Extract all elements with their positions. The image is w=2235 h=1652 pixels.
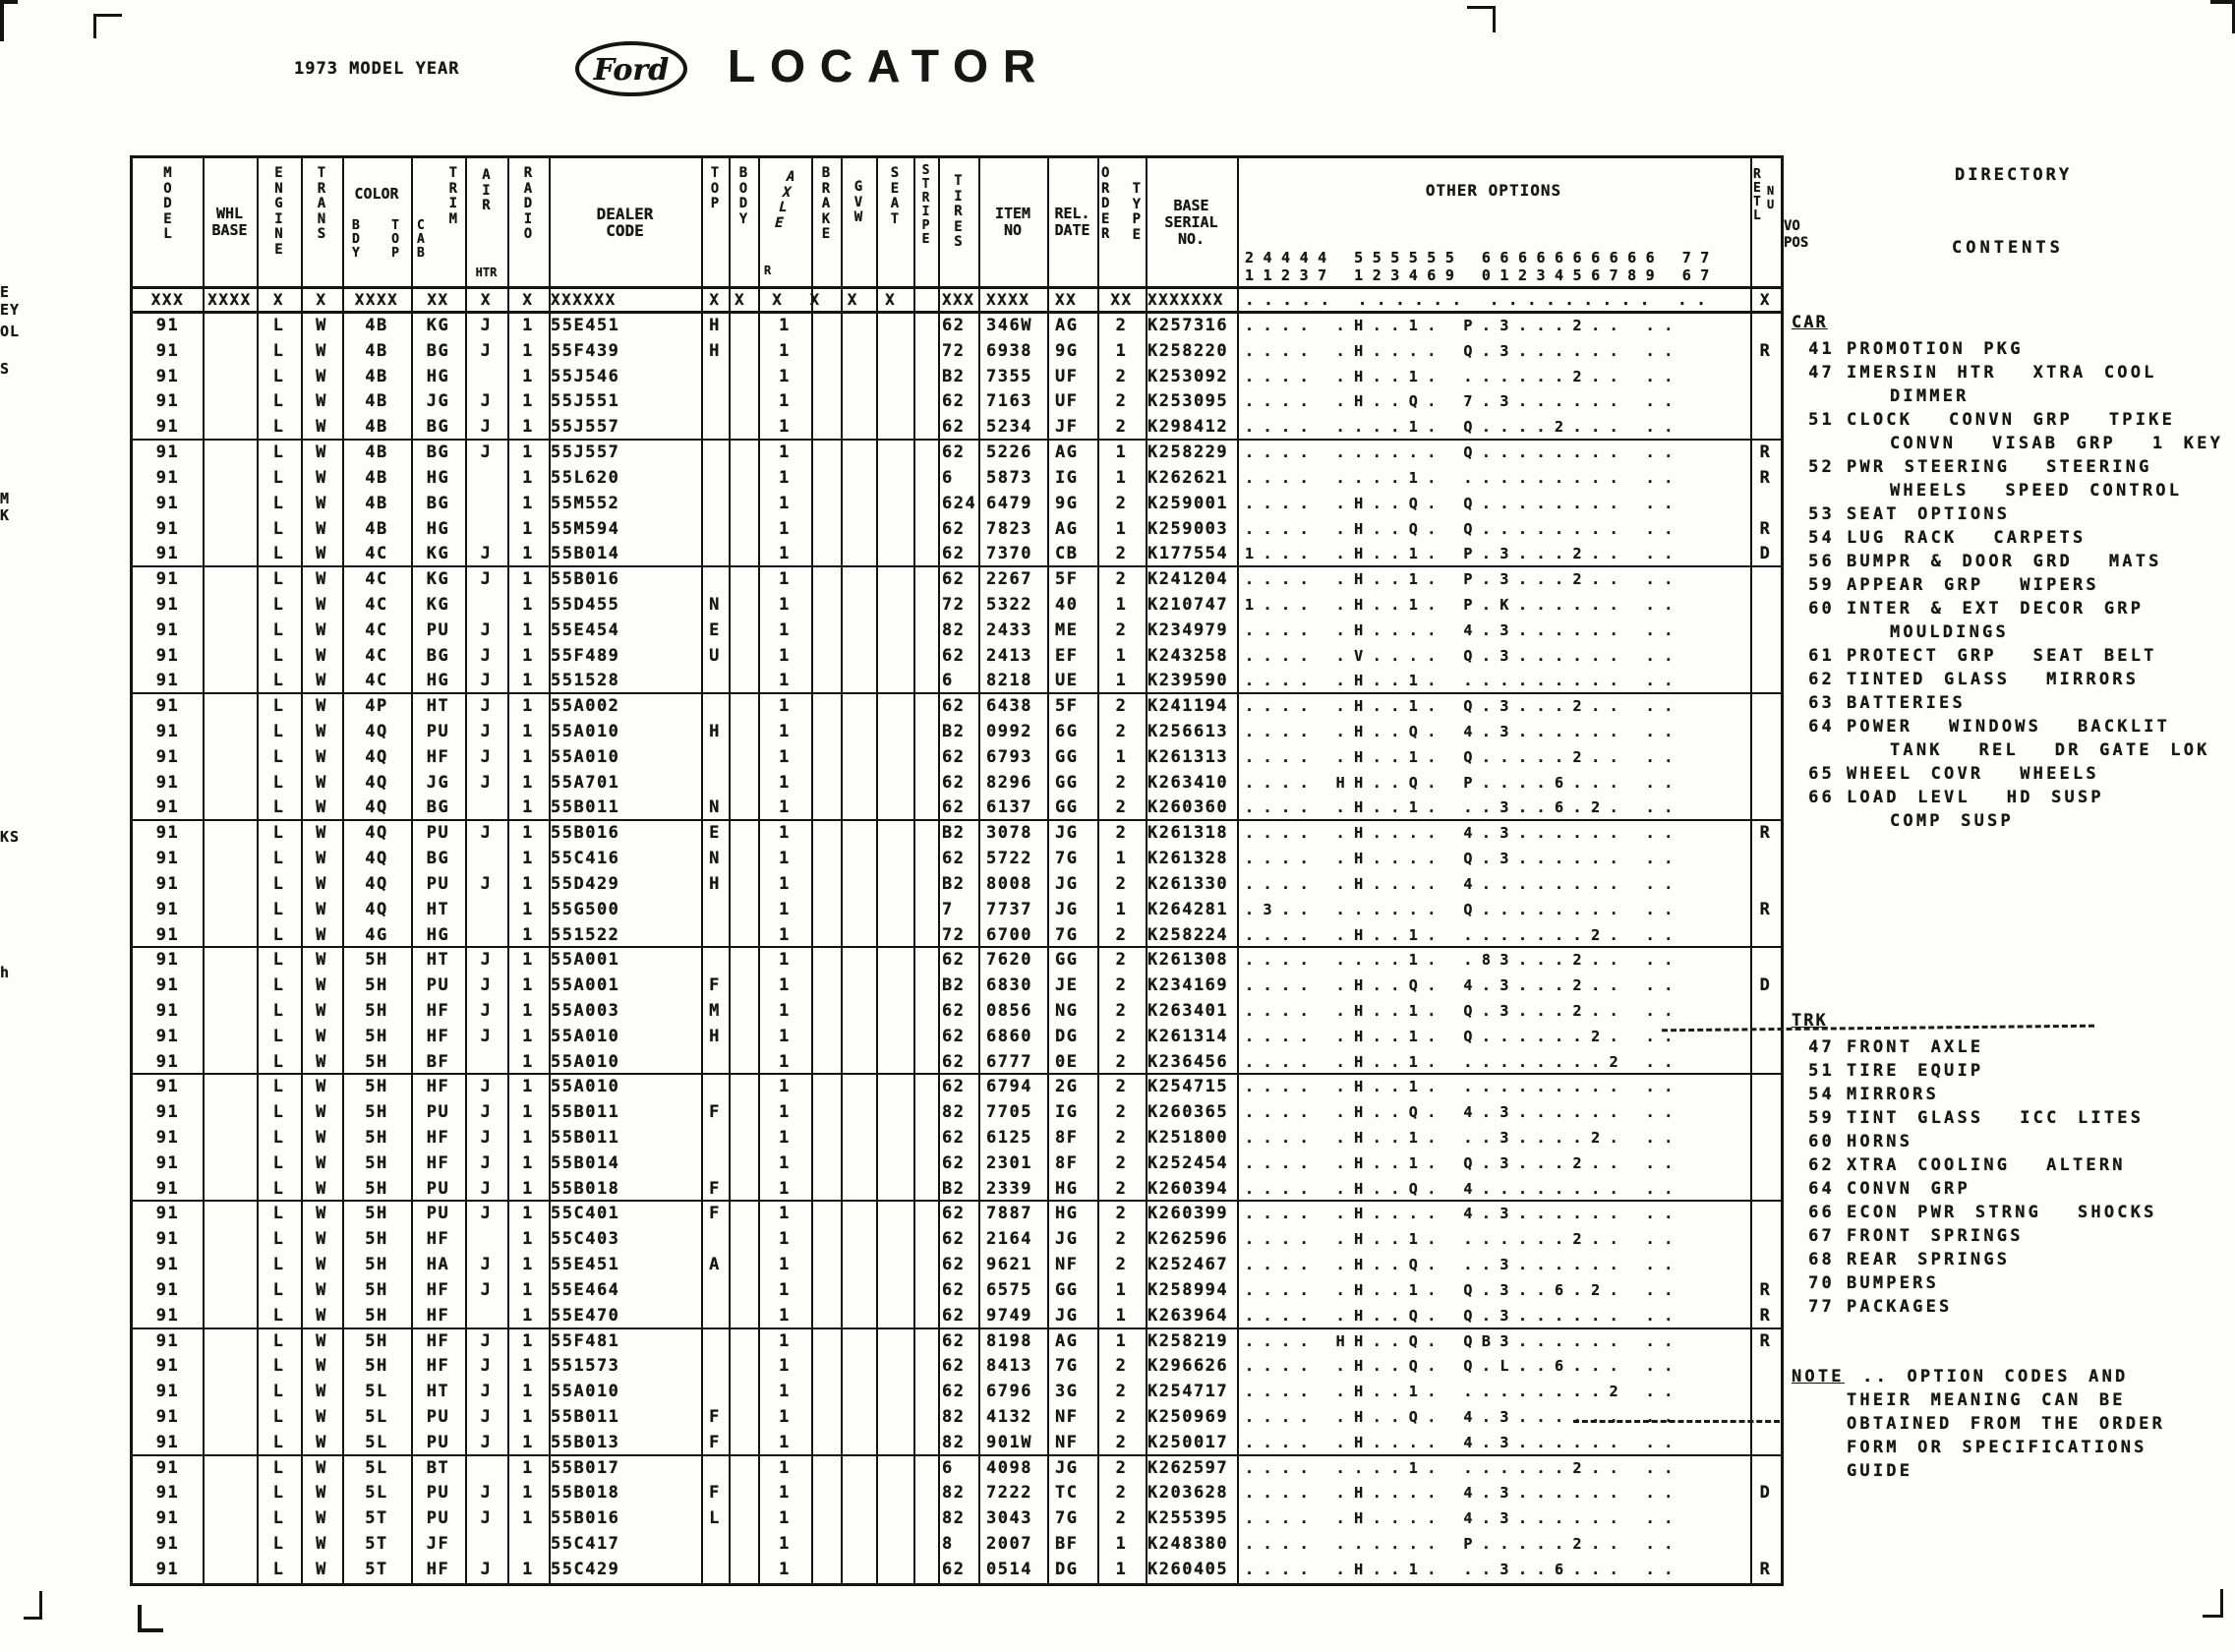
cell-air: J (465, 1405, 507, 1431)
cell-model: 91 (133, 593, 203, 619)
table-row: 91LW4PHTJ155A00216264385F2K241194.... .H… (133, 694, 1781, 720)
directory-item-label: TINTED GLASS MIRRORS (1847, 668, 2139, 691)
cell-air: J (465, 339, 507, 365)
cell-trim: HT (411, 898, 465, 923)
column-rule (1750, 158, 1752, 1583)
cell-other-options: .... .H..1. Q.3...2.. .. (1237, 999, 1766, 1025)
cell-model: 91 (133, 619, 203, 644)
cell-item-no: 2164 (978, 1227, 1055, 1253)
directory-item-code: 59 (1792, 573, 1847, 597)
cell-trim: HF (411, 1025, 465, 1050)
cell-base-serial: K177554 (1146, 542, 1239, 565)
cell-dealer-code: 55B011 (549, 1100, 703, 1126)
cell-dealer-code: 55M594 (549, 517, 703, 543)
cell-color: 5H (342, 1050, 411, 1074)
table-row: 91LW5HHFJ155A01016267942G2K254715.... .H… (133, 1075, 1781, 1100)
cell-order-type: 2 (1097, 314, 1146, 339)
cell-model: 91 (133, 542, 203, 565)
cell-trans: W (301, 365, 342, 390)
table-row: 91LW4CKG155D455N1725322401K2107471... .H… (133, 593, 1781, 619)
cell-model: 91 (133, 923, 203, 947)
cell-color: 4B (342, 441, 411, 466)
cell-base-serial: K261330 (1146, 872, 1239, 898)
xrow-engine: X (257, 289, 301, 311)
directory-item-label: LUG RACK CARPETS (1847, 526, 2086, 550)
cell-dealer-code: 55E451 (549, 1253, 703, 1278)
cell-other-options: .... .H..Q. Q........ .. (1237, 517, 1766, 543)
table-row: 91LW4CKGJ155B0141627370CB2K1775541... .H… (133, 542, 1781, 567)
cell-air: J (465, 1380, 507, 1405)
column-rule (729, 158, 731, 1583)
table-row: 91LW4BBG155M552162464799G2K259001.... .H… (133, 492, 1781, 517)
cell-color: 4Q (342, 847, 411, 872)
cell-axle: 1 (758, 923, 811, 947)
cell-retl: R (1750, 339, 1781, 365)
cell-trans: W (301, 1532, 342, 1558)
cell-dealer-code: 55L620 (549, 466, 703, 492)
cell-air: J (465, 1126, 507, 1151)
cell-other-options: .... .H..Q. Q.3...... .. (1237, 1304, 1766, 1327)
cell-base-serial: K258994 (1146, 1278, 1239, 1304)
cell-other-options: .... .V.... Q.3...... .. (1237, 644, 1766, 670)
directory-item-code: 66 (1792, 786, 1847, 809)
directory-item-code: 54 (1792, 1083, 1847, 1106)
table-row: 91LW5HHFJ155A003M1620856NG2K263401.... .… (133, 999, 1781, 1025)
cell-other-options: .... .H..1. ........2 .. (1237, 1380, 1766, 1405)
cell-top: F (701, 1202, 729, 1227)
page-title-year: 1973 MODEL YEAR (294, 59, 460, 79)
cell-other-options: .... .H..Q. 4.3...2.. .. (1237, 973, 1766, 999)
cell-item-no: 346W (978, 314, 1055, 339)
cell-engine: L (257, 872, 301, 898)
cell-trim: BF (411, 1050, 465, 1074)
cell-model: 91 (133, 720, 203, 745)
cell-engine: L (257, 1456, 301, 1482)
cell-dealer-code: 55B014 (549, 1151, 703, 1177)
cell-top: N (701, 796, 729, 819)
cell-trim: PU (411, 1481, 465, 1506)
cell-order-type: 2 (1097, 1126, 1146, 1151)
cell-retl: R (1750, 466, 1781, 492)
col-header-retl: R E T L N U (1750, 158, 1781, 286)
column-rule (411, 158, 413, 1583)
cell-engine: L (257, 1532, 301, 1558)
cell-dealer-code: 551522 (549, 923, 703, 947)
cell-axle: 1 (758, 1075, 811, 1100)
directory-item-label: POWER WINDOWS BACKLIT (1847, 715, 2170, 738)
note-text-cont: THEIR MEANING CAN BE (1792, 1388, 2235, 1412)
cell-axle: 1 (758, 1329, 811, 1355)
cell-axle: 1 (758, 796, 811, 819)
cell-trim: JF (411, 1532, 465, 1558)
table-row: 91LW5HHFJ155A010H1626860DG2K261314.... .… (133, 1025, 1781, 1050)
cell-base-serial: K260405 (1146, 1558, 1239, 1583)
directory-item-label-cont: CONVN VISAB GRP 1 KEY (1792, 432, 2235, 455)
col-header-stripe: S T R I P E (913, 158, 938, 286)
cell-order-type: 1 (1097, 1329, 1146, 1355)
cell-dealer-code: 55E451 (549, 314, 703, 339)
cell-radio: 1 (507, 339, 549, 365)
cell-order-type: 2 (1097, 415, 1146, 439)
cell-item-no: 8198 (978, 1329, 1055, 1355)
cell-axle: 1 (758, 517, 811, 543)
cell-item-no: 6796 (978, 1380, 1055, 1405)
cell-dealer-code: 55B016 (549, 1506, 703, 1532)
directory-item-label-cont: TANK REL DR GATE LOK (1792, 738, 2235, 762)
directory-item-code: 67 (1792, 1224, 1847, 1248)
cell-model: 91 (133, 1431, 203, 1454)
cell-model: 91 (133, 847, 203, 872)
directory-item-label: TIRE EQUIP (1847, 1059, 1983, 1083)
cell-color: 4B (342, 339, 411, 365)
cell-engine: L (257, 1304, 301, 1327)
cell-base-serial: K260399 (1146, 1202, 1239, 1227)
cell-other-options: .... ...... P.....2.. .. (1237, 1532, 1766, 1558)
directory-item: 56BUMPR & DOOR GRD MATS (1792, 550, 2235, 573)
cell-engine: L (257, 339, 301, 365)
cell-axle: 1 (758, 339, 811, 365)
col-header-tires: T I R E S (938, 158, 978, 286)
column-rule (1146, 158, 1147, 1583)
margin-fragment: E (0, 283, 10, 301)
cell-other-options: .3.. ...... Q........ .. (1237, 898, 1766, 923)
cell-other-options: .... .H.... 4.3...... .. (1237, 1481, 1766, 1506)
directory-item-code: 41 (1792, 337, 1847, 361)
crop-mark-bottom-left-edge (24, 1591, 42, 1620)
cell-air: J (465, 720, 507, 745)
directory-item-label: BUMPR & DOOR GRD MATS (1847, 550, 2162, 573)
col-header-whl-base: WHL BASE (203, 158, 257, 286)
cell-retl: R (1750, 517, 1781, 543)
cell-model: 91 (133, 466, 203, 492)
cell-item-no: 2433 (978, 619, 1055, 644)
options-digit-row-tens: 24444 555555 6666666666 77 (1245, 249, 1719, 266)
cell-radio: 1 (507, 1177, 549, 1201)
cell-color: 5H (342, 1202, 411, 1227)
directory-item: 54LUG RACK CARPETS (1792, 526, 2235, 550)
cell-air: J (465, 1431, 507, 1454)
cell-trans: W (301, 796, 342, 819)
cell-color: 5L (342, 1431, 411, 1454)
cell-radio: 1 (507, 441, 549, 466)
table-row: 91LW4QBG155B011N1626137GG2K260360.... .H… (133, 796, 1781, 821)
cell-air: J (465, 948, 507, 973)
directory-item: 67FRONT SPRINGS (1792, 1224, 2235, 1248)
cell-color: 4C (342, 542, 411, 565)
cell-model: 91 (133, 1253, 203, 1278)
cell-trim: HA (411, 1253, 465, 1278)
cell-axle: 1 (758, 1202, 811, 1227)
table-row: 91LW5TPUJ155B016L18230437G2K255395.... .… (133, 1506, 1781, 1532)
cell-retl: R (1750, 898, 1781, 923)
cell-other-options: .... ....1. .83...2.. .. (1237, 948, 1766, 973)
table-row: 91LW5HPUJ155B011F1827705IG2K260365.... .… (133, 1100, 1781, 1126)
cell-engine: L (257, 1151, 301, 1177)
cell-top: F (701, 1100, 729, 1126)
cell-dealer-code: 551528 (549, 669, 703, 692)
cell-dealer-code: 55J557 (549, 415, 703, 439)
cell-dealer-code: 55M552 (549, 492, 703, 517)
cell-air: J (465, 745, 507, 771)
margin-fragment: M (0, 490, 10, 507)
cell-axle: 1 (758, 1506, 811, 1532)
cell-dealer-code: 55C417 (549, 1532, 703, 1558)
cell-model: 91 (133, 1177, 203, 1201)
cell-axle: 1 (758, 1481, 811, 1506)
cell-item-no: 5322 (978, 593, 1055, 619)
cell-trim: PU (411, 821, 465, 847)
directory-item-code: 53 (1792, 502, 1847, 526)
cell-color: 4Q (342, 898, 411, 923)
cell-radio: 1 (507, 1126, 549, 1151)
cell-item-no: 2007 (978, 1532, 1055, 1558)
cell-trans: W (301, 720, 342, 745)
cell-trans: W (301, 1456, 342, 1482)
cell-trans: W (301, 492, 342, 517)
cell-model: 91 (133, 389, 203, 415)
directory-note: NOTE .. OPTION CODES ANDTHEIR MEANING CA… (1792, 1365, 2235, 1483)
cell-other-options: .... .H.... 4.3...... .. (1237, 1202, 1766, 1227)
cell-dealer-code: 55E454 (549, 619, 703, 644)
cell-trans: W (301, 1329, 342, 1355)
cell-other-options: .... .H.... Q.3...... .. (1237, 847, 1766, 872)
col-header-engine: E N G I N E (257, 158, 301, 286)
cell-other-options: .... .H..Q. 4.3...... .. (1237, 1405, 1766, 1431)
directory-item-code: 66 (1792, 1201, 1847, 1224)
cell-order-type: 2 (1097, 720, 1146, 745)
cell-axle: 1 (758, 999, 811, 1025)
xrow-order-type: XX (1097, 289, 1146, 311)
cell-radio: 1 (507, 619, 549, 644)
col-header-color-bdy: B D Y (352, 219, 360, 261)
cell-trans: W (301, 898, 342, 923)
note-text-cont: OBTAINED FROM THE ORDER (1792, 1412, 2235, 1436)
cell-dealer-code: 55J546 (549, 365, 703, 390)
cell-base-serial: K261328 (1146, 847, 1239, 872)
cell-air: J (465, 619, 507, 644)
column-rule (465, 158, 467, 1583)
cell-trans: W (301, 973, 342, 999)
cell-order-type: 2 (1097, 694, 1146, 720)
directory-item-code: 68 (1792, 1248, 1847, 1271)
cell-radio: 1 (507, 821, 549, 847)
cell-order-type: 2 (1097, 1506, 1146, 1532)
cell-other-options: .... ...... Q........ .. (1237, 441, 1766, 466)
cell-other-options: .... HH..Q. QB3...... .. (1237, 1329, 1766, 1355)
cell-color: 5H (342, 1278, 411, 1304)
margin-fragment: S (0, 360, 10, 378)
cell-trim: BT (411, 1456, 465, 1482)
directory-item: 66ECON PWR STRNG SHOCKS (1792, 1201, 2235, 1224)
cell-air: J (465, 973, 507, 999)
directory-item-label: PROTECT GRP SEAT BELT (1847, 644, 2157, 668)
cell-axle: 1 (758, 1050, 811, 1074)
cell-dealer-code: 55A001 (549, 973, 703, 999)
table-row: 91LW4QPUJ155A010H1B209926G2K256613.... .… (133, 720, 1781, 745)
scanned-document: 1973 MODEL YEAR Ford LOCATOR M O D E L W… (0, 0, 2235, 1652)
cell-axle: 1 (758, 1177, 811, 1201)
cell-order-type: 1 (1097, 847, 1146, 872)
cell-axle: 1 (758, 1100, 811, 1126)
cell-engine: L (257, 1481, 301, 1506)
cell-dealer-code: 55C401 (549, 1202, 703, 1227)
xrow-top: X (701, 289, 729, 311)
cell-trans: W (301, 1075, 342, 1100)
note-label: NOTE (1792, 1367, 1845, 1386)
cell-dealer-code: 55D429 (549, 872, 703, 898)
table-row: 91LW4BHG155L620165873IG1K262621.... ....… (133, 466, 1781, 492)
col-header-htr: HTR (465, 265, 507, 281)
cell-radio: 1 (507, 771, 549, 796)
cell-item-no: 9749 (978, 1304, 1055, 1327)
cell-trim: HF (411, 1227, 465, 1253)
cell-item-no: 5873 (978, 466, 1055, 492)
column-rule (876, 158, 878, 1583)
table-row: 91LW4CHGJ1551528168218UE1K239590.... .H.… (133, 669, 1781, 694)
cell-item-no: 8413 (978, 1354, 1055, 1380)
directory-subtitle: CONTENTS (1952, 238, 2064, 258)
directory-item-code: 77 (1792, 1295, 1847, 1319)
xrow-trim: XX (411, 289, 465, 311)
directory-item: 64CONVN GRP (1792, 1177, 2235, 1201)
cell-radio: 1 (507, 669, 549, 692)
cell-trim: HF (411, 745, 465, 771)
cell-dealer-code: 55E464 (549, 1278, 703, 1304)
cell-axle: 1 (758, 1456, 811, 1482)
cell-engine: L (257, 1354, 301, 1380)
cell-item-no: 6860 (978, 1025, 1055, 1050)
cell-trim: HF (411, 1126, 465, 1151)
margin-fragment: OL (0, 323, 20, 340)
cell-engine: L (257, 314, 301, 339)
cell-top: F (701, 1177, 729, 1201)
cell-model: 91 (133, 669, 203, 692)
cell-color: 4Q (342, 821, 411, 847)
cell-air: J (465, 415, 507, 439)
cell-radio: 1 (507, 694, 549, 720)
cell-order-type: 1 (1097, 1304, 1146, 1327)
cell-base-serial: K255395 (1146, 1506, 1239, 1532)
cell-axle: 1 (758, 973, 811, 999)
cell-color: 4B (342, 466, 411, 492)
cell-model: 91 (133, 1100, 203, 1126)
cell-base-serial: K260365 (1146, 1100, 1239, 1126)
cell-trans: W (301, 314, 342, 339)
directory-item-label-cont: WHEELS SPEED CONTROL (1792, 479, 2235, 502)
cell-model: 91 (133, 1075, 203, 1100)
directory-item-code: 51 (1792, 1059, 1847, 1083)
cell-color: 4C (342, 669, 411, 692)
col-header-color-top: T O P (391, 219, 399, 261)
cell-trans: W (301, 669, 342, 692)
cell-dealer-code: 55F439 (549, 339, 703, 365)
cell-base-serial: K263401 (1146, 999, 1239, 1025)
col-header-item-no: ITEM NO (978, 158, 1047, 286)
cell-model: 91 (133, 415, 203, 439)
cell-radio: 1 (507, 1506, 549, 1532)
cell-color: 5H (342, 1025, 411, 1050)
directory-item-label: BATTERIES (1847, 691, 1966, 715)
cell-trans: W (301, 517, 342, 543)
options-digit-row-units: 11237 123469 0123456789 67 (1245, 266, 1719, 284)
cell-trim: KG (411, 567, 465, 593)
cell-order-type: 1 (1097, 339, 1146, 365)
ford-logo-icon: Ford (573, 39, 689, 102)
directory-item: 68REAR SPRINGS (1792, 1248, 2235, 1271)
cell-order-type: 2 (1097, 923, 1146, 947)
cell-engine: L (257, 796, 301, 819)
cell-base-serial: K239590 (1146, 669, 1239, 692)
cell-item-no: 5722 (978, 847, 1055, 872)
cell-item-no: 7705 (978, 1100, 1055, 1126)
cell-air: J (465, 1253, 507, 1278)
cell-order-type: 2 (1097, 948, 1146, 973)
cell-top: N (701, 593, 729, 619)
cell-model: 91 (133, 694, 203, 720)
cell-retl: R (1750, 1304, 1781, 1327)
cell-order-type: 2 (1097, 1481, 1146, 1506)
directory-item: 77PACKAGES (1792, 1295, 2235, 1319)
cell-radio: 1 (507, 365, 549, 390)
cell-trans: W (301, 847, 342, 872)
cell-radio: 1 (507, 644, 549, 670)
table-row: 91LW5HHFJ155B01116261258F2K251800.... .H… (133, 1126, 1781, 1151)
cell-air: J (465, 1278, 507, 1304)
directory-item-code: 47 (1792, 361, 1847, 384)
cell-item-no: 6700 (978, 923, 1055, 947)
cell-other-options: .... .H..1. Q.....2.. .. (1237, 745, 1766, 771)
directory-item-label: CLOCK CONVN GRP TPIKE (1847, 408, 2175, 432)
cell-order-type: 2 (1097, 973, 1146, 999)
cell-air: J (465, 389, 507, 415)
cell-color: 5H (342, 1227, 411, 1253)
cell-model: 91 (133, 745, 203, 771)
cell-color: 4B (342, 314, 411, 339)
cell-air: J (465, 1151, 507, 1177)
directory-item: 64POWER WINDOWS BACKLIT (1792, 715, 2235, 738)
cell-item-no: 6794 (978, 1075, 1055, 1100)
cell-color: 4P (342, 694, 411, 720)
cell-order-type: 1 (1097, 466, 1146, 492)
cell-radio: 1 (507, 1481, 549, 1506)
table-row: 91LW4BHG155M5941627823AG1K259003.... .H.… (133, 517, 1781, 543)
directory-item: 59APPEAR GRP WIPERS (1792, 573, 2235, 597)
table-row: 91LW4BKGJ155E451H162346WAG2K257316.... .… (133, 314, 1781, 339)
cell-engine: L (257, 948, 301, 973)
col-header-trans: T R A N S (301, 158, 342, 286)
cell-trim: PU (411, 872, 465, 898)
cell-air: J (465, 1025, 507, 1050)
cell-item-no: 7355 (978, 365, 1055, 390)
cell-axle: 1 (758, 720, 811, 745)
xrow-radio: X (507, 289, 549, 311)
cell-item-no: 6137 (978, 796, 1055, 819)
directory-item-label-cont: DIMMER (1792, 384, 2235, 408)
cell-color: 4C (342, 593, 411, 619)
cell-item-no: 7823 (978, 517, 1055, 543)
directory-item: 61PROTECT GRP SEAT BELT (1792, 644, 2235, 668)
cell-color: 5L (342, 1405, 411, 1431)
cell-dealer-code: 55G500 (549, 898, 703, 923)
directory-item: 66LOAD LEVL HD SUSP (1792, 786, 2235, 809)
cell-dealer-code: 55B018 (549, 1481, 703, 1506)
column-rule (257, 158, 259, 1583)
cell-axle: 1 (758, 1227, 811, 1253)
cell-trim: HG (411, 466, 465, 492)
cell-item-no: 6777 (978, 1050, 1055, 1074)
cell-model: 91 (133, 1329, 203, 1355)
cell-dealer-code: 55A701 (549, 771, 703, 796)
